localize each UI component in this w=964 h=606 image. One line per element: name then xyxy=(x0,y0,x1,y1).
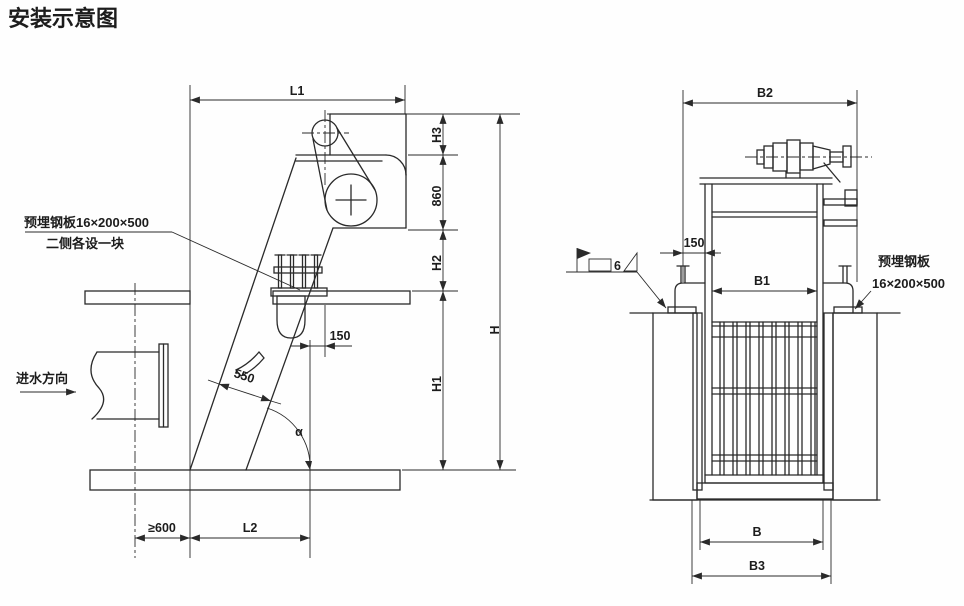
right-front-view: 6 预埋钢板 16×200×500 B2 150 B1 B xyxy=(566,86,945,584)
weld-size-label: 6 xyxy=(614,259,621,273)
screen-frame-profile xyxy=(190,114,406,470)
plate-note-line1: 预埋钢板16×200×500 xyxy=(24,215,149,230)
plate-note: 预埋钢板16×200×500 二侧各设一块 xyxy=(24,215,300,290)
dim-H2-label: H2 xyxy=(430,255,444,271)
dim-600-label: ≥600 xyxy=(148,521,176,535)
embedded-plate-left xyxy=(668,307,696,313)
dim-L1-label: L1 xyxy=(290,84,305,98)
drive-unit xyxy=(745,140,872,182)
dim-B-label: B xyxy=(752,525,761,539)
plate-note-right-line2: 16×200×500 xyxy=(872,276,945,291)
channel-walls xyxy=(630,313,900,500)
plate-note-line2: 二侧各设一块 xyxy=(46,236,125,251)
dim-B2-label: B2 xyxy=(757,86,773,100)
dim-alpha-label: α xyxy=(295,425,303,439)
dim-B3-label: B3 xyxy=(749,559,765,573)
flow-direction-label: 进水方向 xyxy=(16,371,68,386)
page-title: 安装示意图 xyxy=(8,6,118,31)
head-sprocket-and-crank xyxy=(302,110,377,226)
embedded-plate-right xyxy=(834,307,862,313)
installation-diagram-page: 安装示意图 xyxy=(0,0,964,606)
dim-H3-label: H3 xyxy=(430,127,444,143)
plate-note-right: 预埋钢板 16×200×500 xyxy=(855,254,945,309)
plate-note-right-line1: 预埋钢板 xyxy=(878,254,931,269)
dim-B1-label: B1 xyxy=(754,274,770,288)
dim-860-label: 860 xyxy=(430,186,444,207)
dim-L2-label: L2 xyxy=(243,521,258,535)
dim-150-left-label: 150 xyxy=(330,329,351,343)
dim-H-label: H xyxy=(488,325,502,334)
inflow-pipe xyxy=(91,344,168,427)
dim-H1-label: H1 xyxy=(430,376,444,392)
channel-floor-slab xyxy=(90,470,400,490)
bar-rack xyxy=(712,322,817,475)
weld-symbol: 6 xyxy=(566,248,666,308)
left-side-view: 进水方向 预埋钢板16×200×500 二侧各设一块 L1 H3 860 xyxy=(16,84,520,558)
installation-diagram-canvas: 安装示意图 xyxy=(0,0,964,606)
dim-150-right-label: 150 xyxy=(684,236,705,250)
